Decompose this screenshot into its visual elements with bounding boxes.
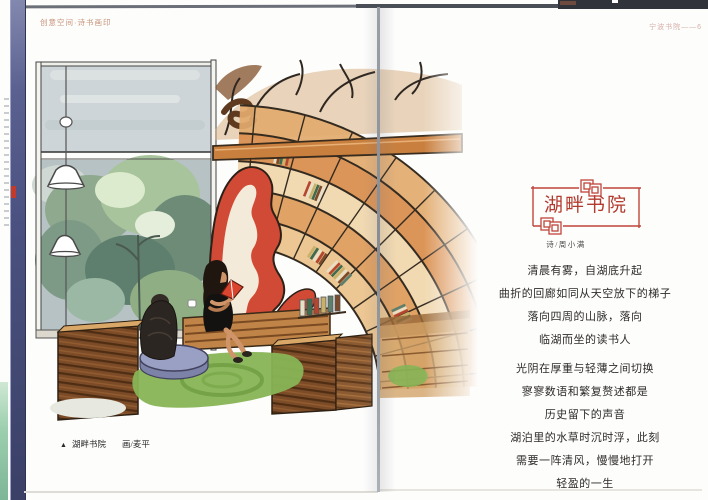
cover-edge-mark bbox=[560, 1, 576, 5]
poem-line: 临湖而坐的读书人 bbox=[455, 329, 708, 352]
book-cover-top-edge bbox=[20, 5, 360, 8]
underlying-page-green-edge bbox=[0, 382, 8, 500]
running-head-right: 宁波书院——6 bbox=[570, 22, 702, 32]
book-cover-left-edge bbox=[10, 0, 26, 500]
scanned-book-spread: 创意空间·诗书画印 宁波书院——6 bbox=[0, 0, 708, 500]
poem-line: 清晨有雾，自湖底升起 bbox=[455, 260, 708, 283]
page-gutter bbox=[377, 7, 380, 492]
gutter-shadow bbox=[363, 7, 377, 492]
poem-line: 落向四周的山脉，落向 bbox=[455, 306, 708, 329]
caption-credit: 画/麦平 bbox=[122, 438, 150, 450]
poem-line: 轻盈的一生 bbox=[455, 473, 708, 496]
spine-red-mark bbox=[11, 186, 16, 198]
poem-line: 曲折的回廊如同从天空放下的梯子 bbox=[455, 283, 708, 306]
chapter-title: 湖畔书院 bbox=[537, 190, 635, 217]
poem-line: 历史留下的声音 bbox=[455, 404, 708, 427]
poem-line: 湖泊里的水草时沉时浮，此刻 bbox=[455, 427, 708, 450]
poem-text: 清晨有雾，自湖底升起 曲折的回廊如同从天空放下的梯子 落向四周的山脉，落向 临湖… bbox=[455, 260, 708, 496]
caption-triangle-icon: ▲ bbox=[60, 441, 67, 449]
poem-line: 光阴在厚重与轻薄之间切换 bbox=[455, 358, 708, 381]
illustration-caption: ▲ 湖畔书院 画/麦平 bbox=[60, 438, 150, 450]
running-head-left: 创意空间·诗书画印 bbox=[40, 17, 112, 28]
poem-byline: 诗/周小满 bbox=[520, 239, 612, 250]
left-page-bottom-edge bbox=[24, 491, 378, 493]
poem-line: 寥寥数语和繁复赘述都是 bbox=[455, 381, 708, 404]
poem-stanza-1: 清晨有雾，自湖底升起 曲折的回廊如同从天空放下的梯子 落向四周的山脉，落向 临湖… bbox=[455, 260, 708, 352]
book-cover-top-edge-corner bbox=[558, 0, 708, 9]
print-bleed bbox=[50, 398, 126, 418]
lakeside-bookstore-illustration bbox=[26, 54, 478, 446]
poem-stanza-2: 光阴在厚重与轻薄之间切换 寥寥数语和繁复赘述都是 历史留下的声音 湖泊里的水草时… bbox=[455, 358, 708, 496]
gutter-shadow bbox=[380, 7, 396, 492]
poem-line: 需要一阵清风，慢慢地打开 bbox=[455, 450, 708, 473]
spine-microtext bbox=[4, 98, 9, 230]
cover-edge-notch bbox=[612, 0, 618, 3]
caption-title: 湖畔书院 bbox=[72, 438, 106, 450]
